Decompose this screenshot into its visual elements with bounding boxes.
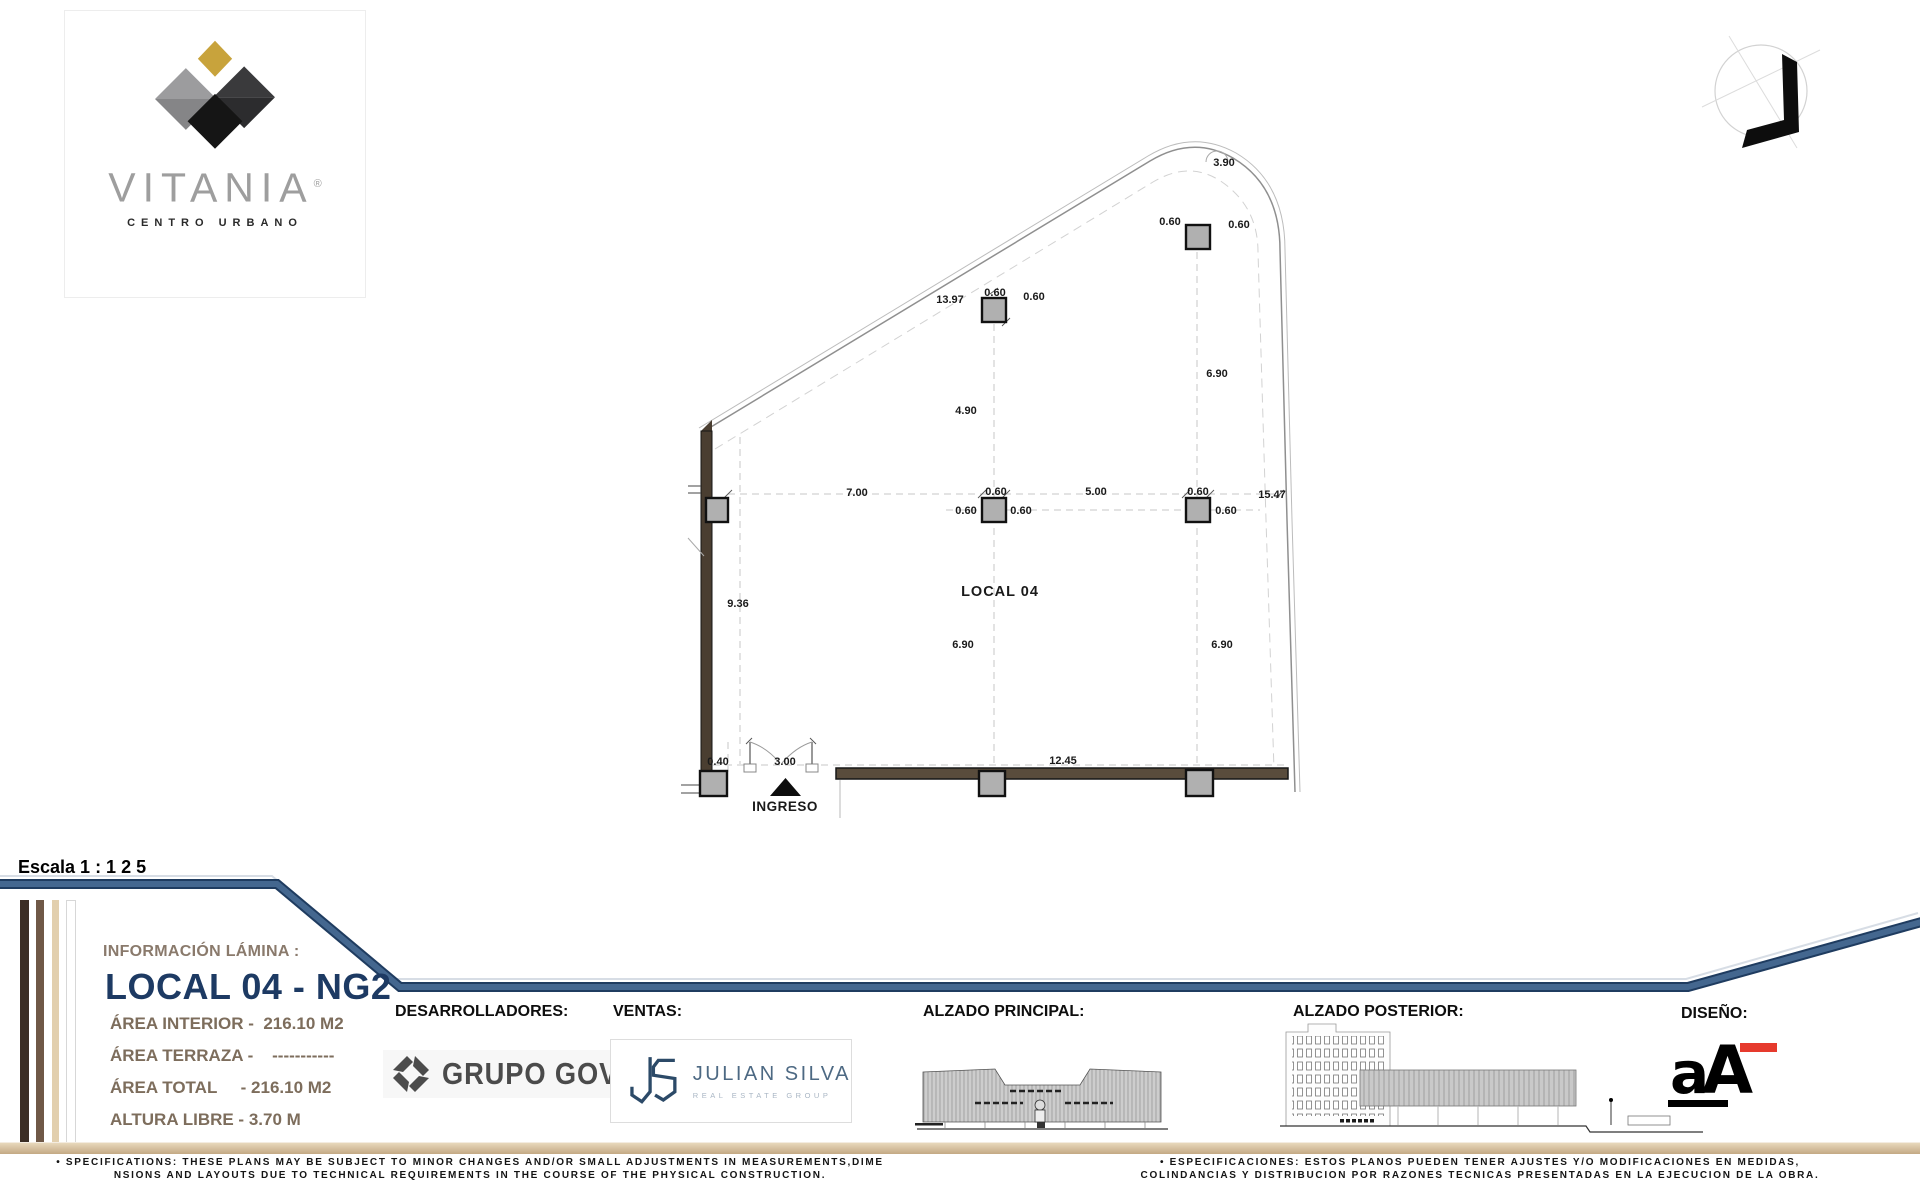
room-label: LOCAL 04 <box>961 584 1039 600</box>
specifications-es-line2: COLINDANCIAS Y DISTRIBUCION POR RAZONES … <box>1045 1169 1915 1182</box>
js-text-block: JULIAN SILVA REAL ESTATE GROUP <box>693 1063 851 1100</box>
vitania-diamond-icon <box>129 39 301 159</box>
dimension-label: 15.47 <box>1258 489 1286 501</box>
specifications-es-line1: • ESPECIFICACIONES: ESTOS PLANOS PUEDEN … <box>1045 1156 1915 1169</box>
dimension-label: 6.90 <box>952 639 973 651</box>
bottom-wall <box>836 768 1288 779</box>
rear-elevation-label: ALZADO POSTERIOR: <box>1293 1003 1464 1021</box>
floor-plan-svg: 3.9013.970.600.600.600.606.904.907.005.0… <box>660 110 1340 840</box>
specifications-en-line1: • SPECIFICATIONS: THESE PLANS MAY BE SUB… <box>30 1156 910 1169</box>
dimension-label: 6.90 <box>1211 639 1232 651</box>
dimension-label: 12.45 <box>1049 755 1077 767</box>
dimension-label: 0.60 <box>985 486 1006 498</box>
brand-tagline: CENTRO URBANO <box>65 217 365 229</box>
entrance-label: INGRESO <box>752 799 818 814</box>
front-elevation-drawing <box>915 1058 1170 1134</box>
aa-design-logo: a A <box>1668 1038 1798 1113</box>
stripe-tan <box>52 900 59 1143</box>
brand-card: VITANIA® CENTRO URBANO <box>64 10 366 298</box>
dimension-label: 0.60 <box>1010 505 1031 517</box>
info-heading: INFORMACIÓN LÁMINA : <box>103 943 300 961</box>
info-rows: ÁREA INTERIOR - 216.10 M2 ÁREA TERRAZA -… <box>110 1014 344 1142</box>
dimension-label: 0.60 <box>955 505 976 517</box>
wall-ticks <box>681 486 701 793</box>
julian-silva-subtitle: REAL ESTATE GROUP <box>693 1091 851 1100</box>
grupo-gova-name: GRUPO GOVA <box>442 1056 637 1092</box>
dimension-label: 4.90 <box>955 405 976 417</box>
brand-name: VITANIA® <box>65 164 365 208</box>
specifications-en: • SPECIFICATIONS: THESE PLANS MAY BE SUB… <box>30 1156 910 1182</box>
dimension-label: 3.90 <box>1213 157 1234 169</box>
dimension-label: 0.60 <box>1187 486 1208 498</box>
julian-silva-name: JULIAN SILVA <box>693 1063 851 1086</box>
stripe-white <box>66 900 76 1145</box>
gova-knot-icon <box>389 1052 433 1096</box>
stripe-dark-brown <box>20 900 29 1143</box>
dimension-label: 0.40 <box>707 756 728 768</box>
dimension-label: 5.00 <box>1085 486 1106 498</box>
dimension-label: 3.00 <box>774 756 795 768</box>
dimension-label: 0.60 <box>984 287 1005 299</box>
north-arrow-icon <box>1698 28 1824 154</box>
tan-divider-bar <box>0 1142 1920 1154</box>
dimension-label: 9.36 <box>727 598 748 610</box>
dimension-label: 7.00 <box>846 487 867 499</box>
developers-label: DESARROLLADORES: <box>395 1003 568 1021</box>
registered-mark: ® <box>314 178 322 190</box>
dimension-label: 0.60 <box>1159 216 1180 228</box>
specifications-es: • ESPECIFICACIONES: ESTOS PLANOS PUEDEN … <box>1045 1156 1915 1182</box>
dimension-label: 13.97 <box>936 294 964 306</box>
left-wall <box>701 431 712 772</box>
front-elevation-label: ALZADO PRINCIPAL: <box>923 1003 1084 1021</box>
dimension-label: 6.90 <box>1206 368 1227 380</box>
dimension-label: 0.60 <box>1215 505 1236 517</box>
rear-elevation-drawing <box>1278 1020 1708 1134</box>
area-total-row: ÁREA TOTAL - 216.10 M2 <box>110 1078 344 1098</box>
sheet-title: LOCAL 04 - NG2 <box>105 966 391 1008</box>
dimension-label: 0.60 <box>1023 291 1044 303</box>
area-interior-row: ÁREA INTERIOR - 216.10 M2 <box>110 1014 344 1034</box>
stripe-brown <box>36 900 44 1143</box>
sales-label: VENTAS: <box>613 1003 682 1021</box>
entrance-arrow <box>770 778 801 796</box>
js-monogram-icon <box>627 1049 680 1113</box>
dimension-label: 0.60 <box>1228 219 1249 231</box>
area-terraza-row: ÁREA TERRAZA - ----------- <box>110 1046 344 1066</box>
julian-silva-logo-box: JULIAN SILVA REAL ESTATE GROUP <box>610 1039 852 1123</box>
altura-libre-row: ALTURA LIBRE - 3.70 M <box>110 1110 344 1130</box>
aa-uppercase: A <box>1702 1038 1753 1104</box>
specifications-en-line2: NSIONS AND LAYOUTS DUE TO TECHNICAL REQU… <box>30 1169 910 1182</box>
